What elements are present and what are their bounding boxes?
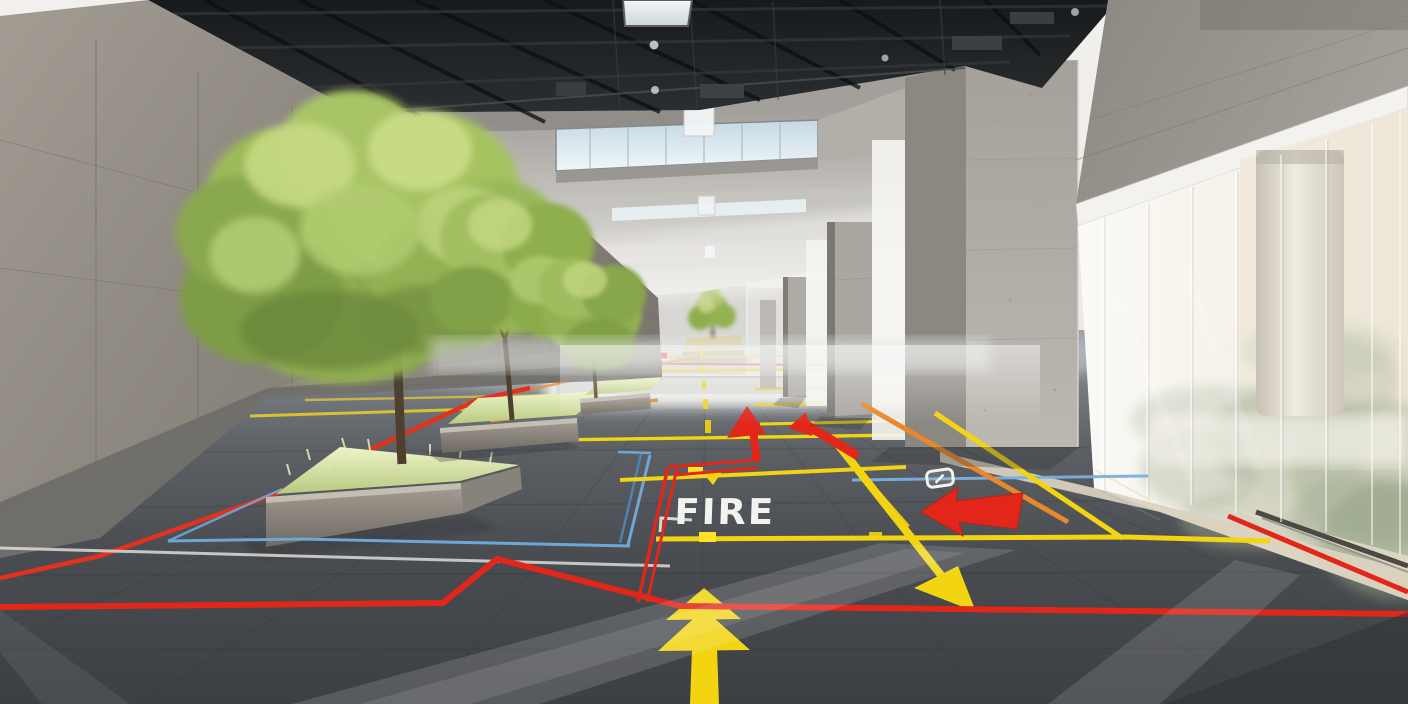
scene-canvas: FIRE [0,0,1408,704]
door-symbol-icon [926,468,954,487]
round-column-outside [1256,150,1344,416]
fire-floor-label: FIRE [674,491,776,533]
ceiling-skylight [623,0,692,26]
atrium-photo-scene: FIRE [0,0,1408,704]
